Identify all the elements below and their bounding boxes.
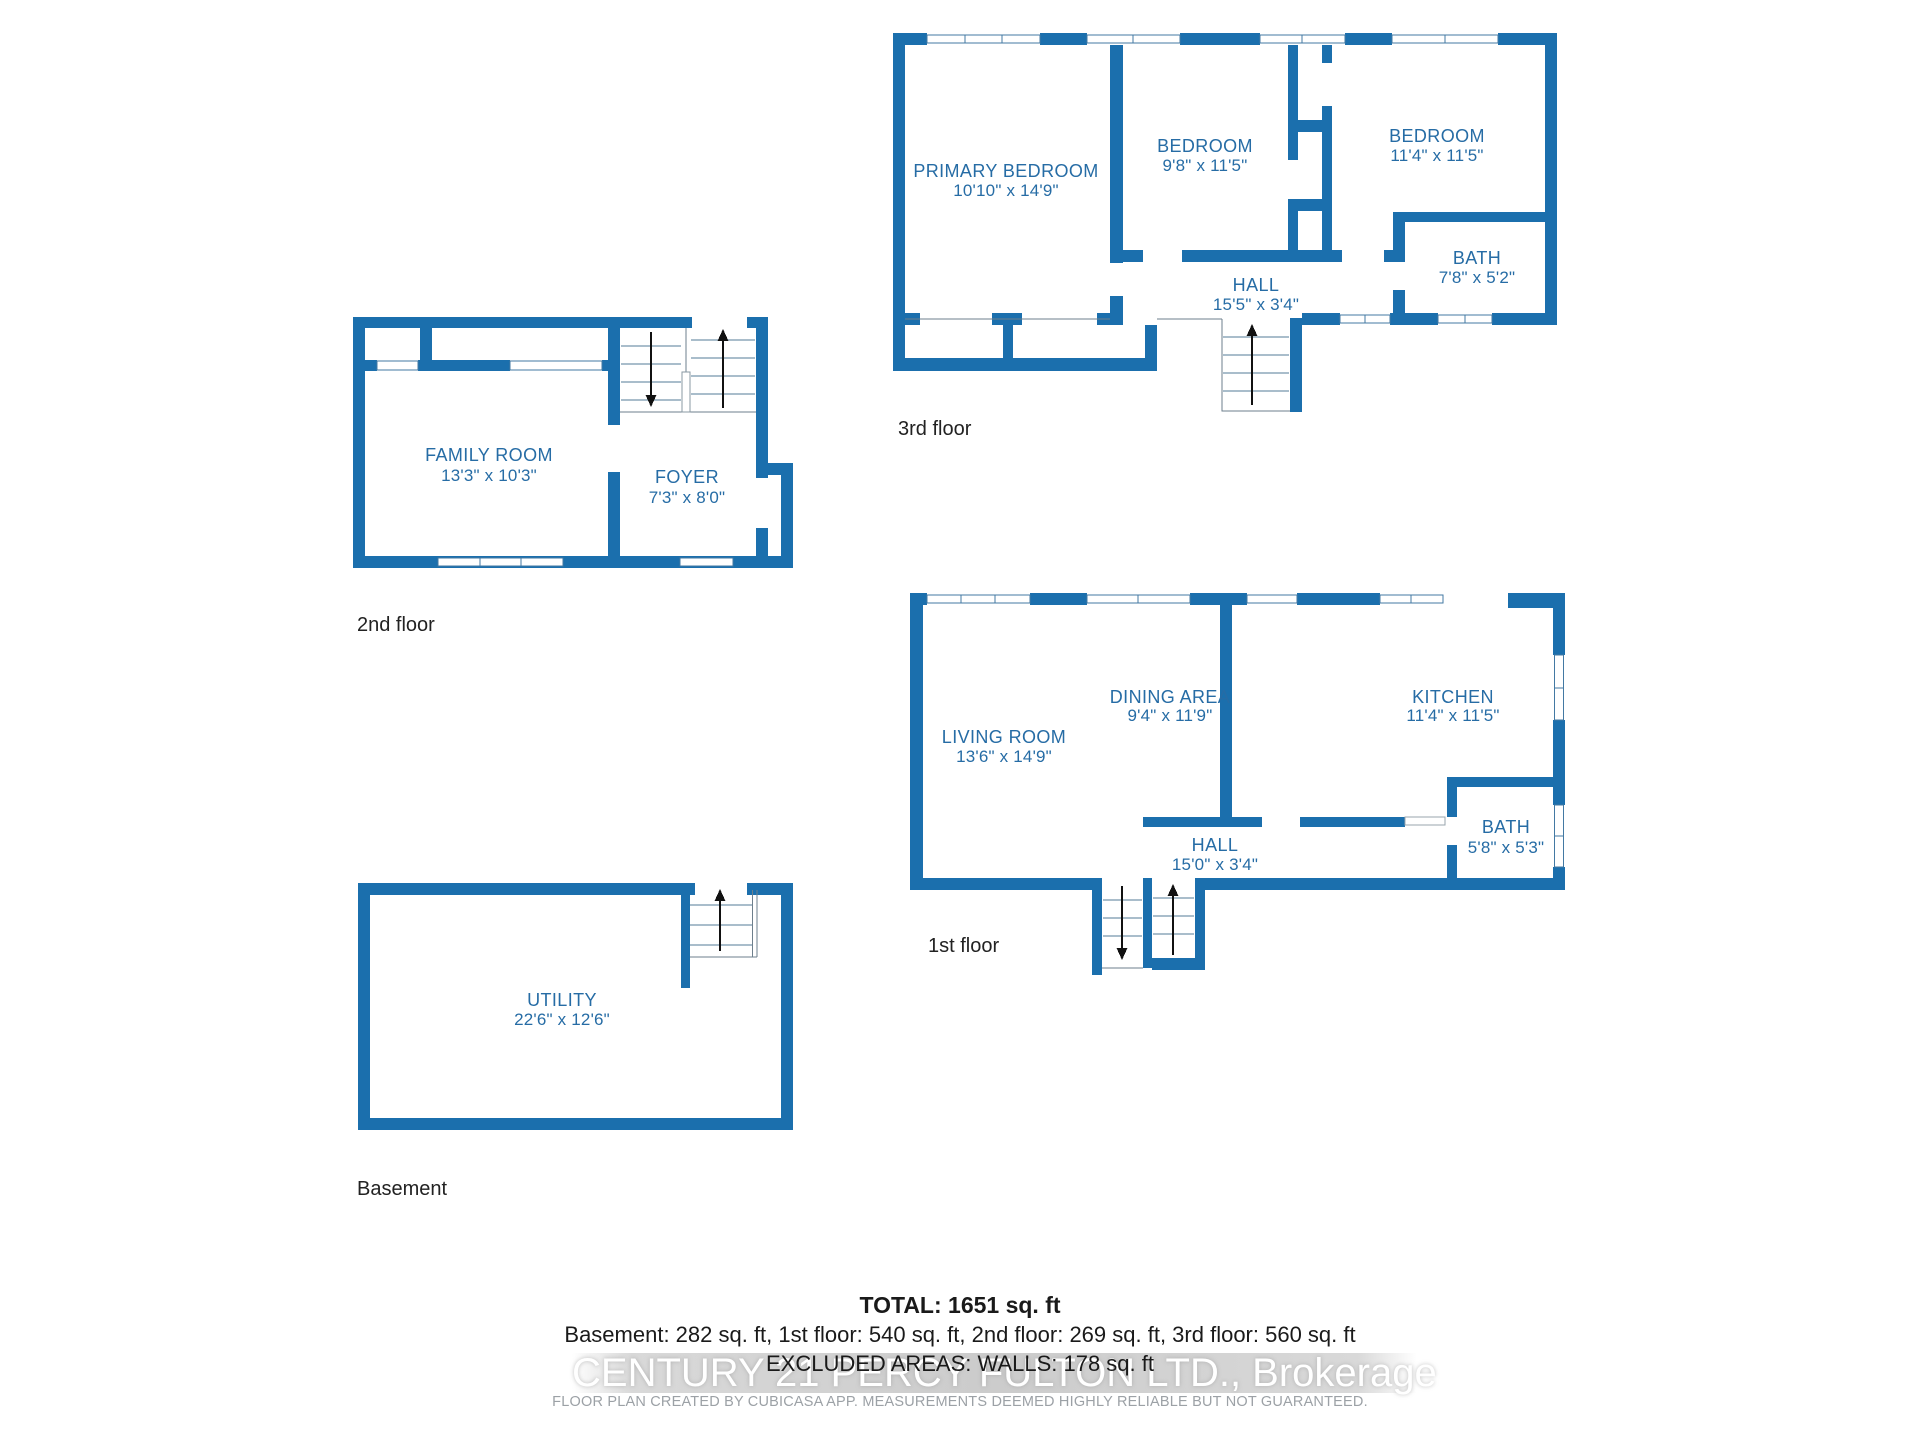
- room-dims: 11'4" x 11'5": [1390, 146, 1483, 165]
- window: [1247, 595, 1297, 603]
- closet-door: [510, 361, 602, 370]
- room-dims: 15'0" x 3'4": [1172, 855, 1258, 874]
- room-dims: 13'3" x 10'3": [441, 466, 537, 485]
- room-name: BEDROOM: [1157, 136, 1253, 156]
- room-dims: 7'8" x 5'2": [1439, 268, 1516, 287]
- room-dims: 22'6" x 12'6": [514, 1010, 610, 1029]
- room-dims: 5'8" x 5'3": [1468, 838, 1545, 857]
- window: [680, 558, 733, 566]
- stair-up-arrow-icon: [715, 889, 726, 901]
- room-dims: 15'5" x 3'4": [1213, 295, 1299, 314]
- area-breakdown-text: Basement: 282 sq. ft, 1st floor: 540 sq.…: [0, 1322, 1920, 1348]
- room-dims: 10'10" x 14'9": [953, 181, 1059, 200]
- walls-2nd-floor: [353, 317, 793, 568]
- room-dims: 9'4" x 11'9": [1128, 706, 1213, 725]
- staircase-basement: [690, 889, 757, 957]
- room-name: PRIMARY BEDROOM: [913, 161, 1098, 181]
- closet-door: [377, 361, 418, 370]
- walls-1st-floor: [910, 593, 1565, 975]
- stair-down-arrow-icon: [646, 395, 657, 407]
- room-dims: 9'8" x 11'5": [1163, 156, 1248, 175]
- room-name: FAMILY ROOM: [425, 445, 553, 465]
- excluded-areas-text: EXCLUDED AREAS: WALLS: 178 sq. ft: [0, 1351, 1920, 1377]
- door-opening: [1405, 817, 1445, 825]
- room-dims: 7'3" x 8'0": [649, 488, 726, 507]
- stair-up-arrow-icon: [1247, 324, 1258, 336]
- room-name: DINING AREA: [1110, 687, 1230, 707]
- room-labels-2nd-floor: FAMILY ROOM 13'3" x 10'3" FOYER 7'3" x 8…: [425, 445, 725, 507]
- room-name: HALL: [1192, 835, 1239, 855]
- room-name: BATH: [1482, 817, 1530, 837]
- floor-plan-3rd-floor: PRIMARY BEDROOM 10'10" x 14'9" BEDROOM 9…: [880, 20, 1580, 450]
- disclaimer-text: FLOOR PLAN CREATED BY CUBICASA APP. MEAS…: [0, 1394, 1920, 1410]
- floor-label-2nd: 2nd floor: [357, 614, 435, 636]
- room-dims: 13'6" x 14'9": [956, 747, 1052, 766]
- room-name: BATH: [1453, 248, 1501, 268]
- floor-plan-basement: UTILITY 22'6" x 12'6" Basement: [350, 875, 810, 1210]
- floorplan-page: PRIMARY BEDROOM 10'10" x 14'9" BEDROOM 9…: [0, 0, 1920, 1440]
- room-name: HALL: [1233, 275, 1280, 295]
- staircase-2nd-floor: [620, 328, 756, 412]
- room-name: LIVING ROOM: [942, 727, 1066, 747]
- floor-plan-2nd-floor: FAMILY ROOM 13'3" x 10'3" FOYER 7'3" x 8…: [350, 310, 810, 640]
- room-dims: 11'4" x 11'5": [1406, 706, 1499, 725]
- floor-label-3rd: 3rd floor: [898, 418, 972, 440]
- floor-label-1st: 1st floor: [928, 935, 999, 957]
- room-name: FOYER: [655, 467, 719, 487]
- stair-down-arrow-icon: [1117, 948, 1128, 960]
- total-area-text: TOTAL: 1651 sq. ft: [0, 1292, 1920, 1319]
- room-name: UTILITY: [527, 990, 597, 1010]
- room-name: BEDROOM: [1389, 126, 1485, 146]
- stair-up-arrow-icon: [718, 329, 729, 341]
- window: [438, 558, 563, 566]
- stair-up-arrow-icon: [1168, 884, 1179, 896]
- room-labels-basement: UTILITY 22'6" x 12'6": [514, 990, 610, 1029]
- window: [927, 35, 1040, 43]
- window: [927, 595, 1030, 603]
- room-name: KITCHEN: [1412, 687, 1494, 707]
- floor-label-basement: Basement: [357, 1178, 447, 1200]
- stair-landing-rail: [682, 372, 690, 412]
- floor-plan-1st-floor: LIVING ROOM 13'6" x 14'9" DINING AREA 9'…: [905, 590, 1570, 1010]
